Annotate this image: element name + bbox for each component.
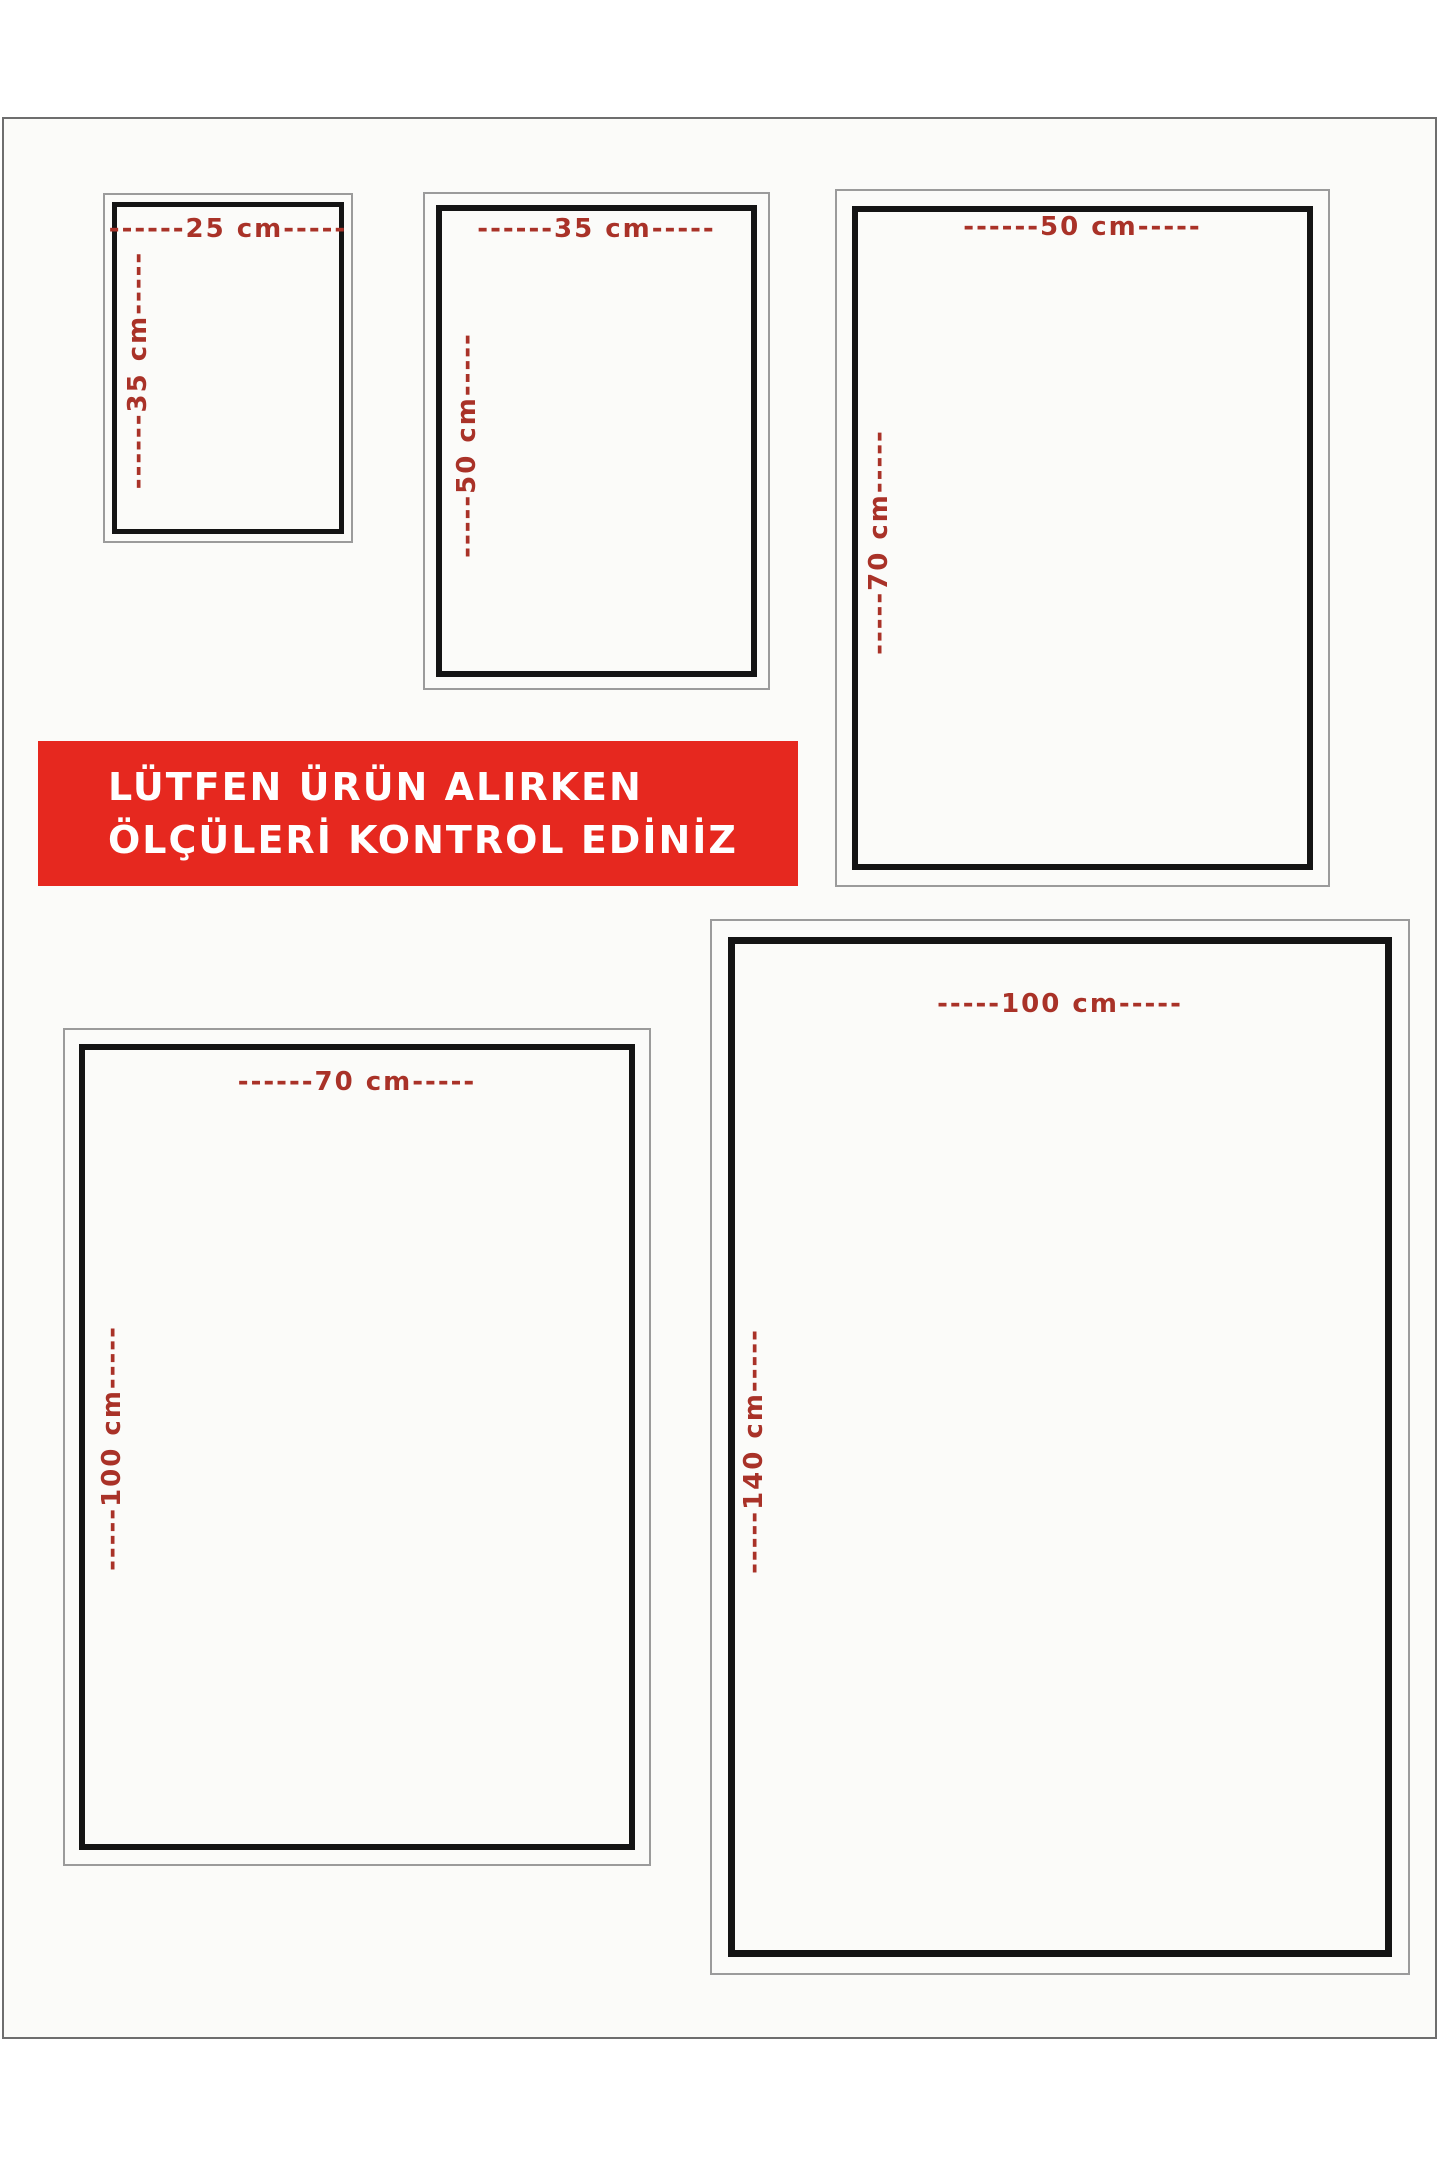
- width-label-100cm: -----100 cm-----: [937, 991, 1183, 1017]
- height-label-50cm: -----50 cm-----: [454, 332, 480, 558]
- width-label-70cm: ------70 cm-----: [238, 1069, 476, 1095]
- height-label-35cm: ------35 cm-----: [125, 251, 151, 489]
- size-box-100x140: -----100 cm----- -----140 cm-----: [710, 919, 1410, 1975]
- size-box-70x100: ------70 cm----- -----100 cm-----: [63, 1028, 651, 1866]
- height-label-100cm: -----100 cm-----: [99, 1325, 125, 1571]
- size-box-35x50-inner-border: [436, 205, 757, 677]
- width-label-35cm: ------35 cm-----: [477, 216, 715, 242]
- size-box-25x35: ------25 cm----- ------35 cm-----: [103, 193, 353, 543]
- width-label-50cm: ------50 cm-----: [963, 214, 1201, 240]
- width-label-25cm: ------25 cm-----: [109, 216, 347, 242]
- warning-banner: LÜTFEN ÜRÜN ALIRKEN ÖLÇÜLERİ KONTROL EDİ…: [38, 741, 798, 886]
- size-chart-canvas: ------25 cm----- ------35 cm----- ------…: [0, 0, 1440, 2160]
- size-box-70x100-inner-border: [79, 1044, 635, 1850]
- size-box-50x70: ------50 cm----- -----70 cm-----: [835, 189, 1330, 887]
- warning-banner-line2: ÖLÇÜLERİ KONTROL EDİNİZ: [108, 814, 798, 867]
- height-label-140cm: -----140 cm-----: [741, 1328, 767, 1574]
- size-box-35x50: ------35 cm----- -----50 cm-----: [423, 192, 770, 690]
- size-box-100x140-inner-border: [728, 937, 1392, 1957]
- size-box-50x70-inner-border: [852, 206, 1313, 870]
- warning-banner-line1: LÜTFEN ÜRÜN ALIRKEN: [108, 761, 798, 814]
- height-label-70cm: -----70 cm-----: [866, 429, 892, 655]
